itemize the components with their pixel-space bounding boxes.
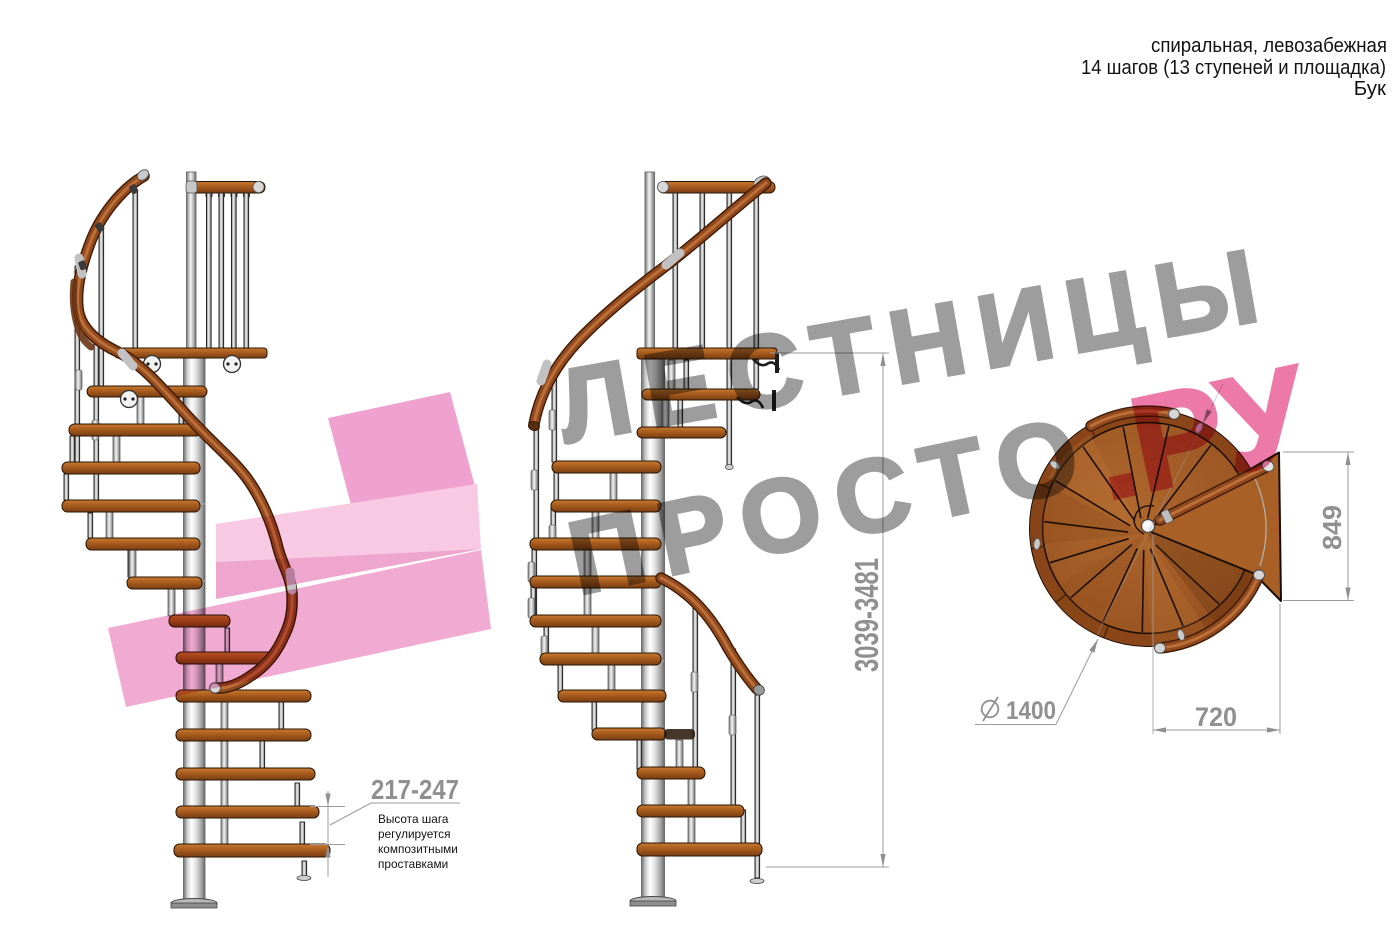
svg-text:композитными: композитными (378, 842, 458, 856)
svg-text:регулируется: регулируется (378, 827, 450, 841)
svg-text:14 шагов (13 ступеней и площад: 14 шагов (13 ступеней и площадка) (1081, 56, 1386, 79)
svg-text:3039-3481: 3039-3481 (848, 558, 885, 672)
svg-text:217-247: 217-247 (371, 774, 459, 805)
svg-text:спиральная, левозабежная: спиральная, левозабежная (1151, 34, 1387, 57)
svg-text:проставками: проставками (378, 857, 448, 871)
svg-text:849: 849 (1317, 505, 1347, 550)
svg-text:Бук: Бук (1354, 77, 1387, 100)
svg-text:1400: 1400 (1006, 697, 1056, 725)
svg-text:720: 720 (1195, 702, 1237, 732)
svg-text:Высота шага: Высота шага (378, 812, 449, 826)
